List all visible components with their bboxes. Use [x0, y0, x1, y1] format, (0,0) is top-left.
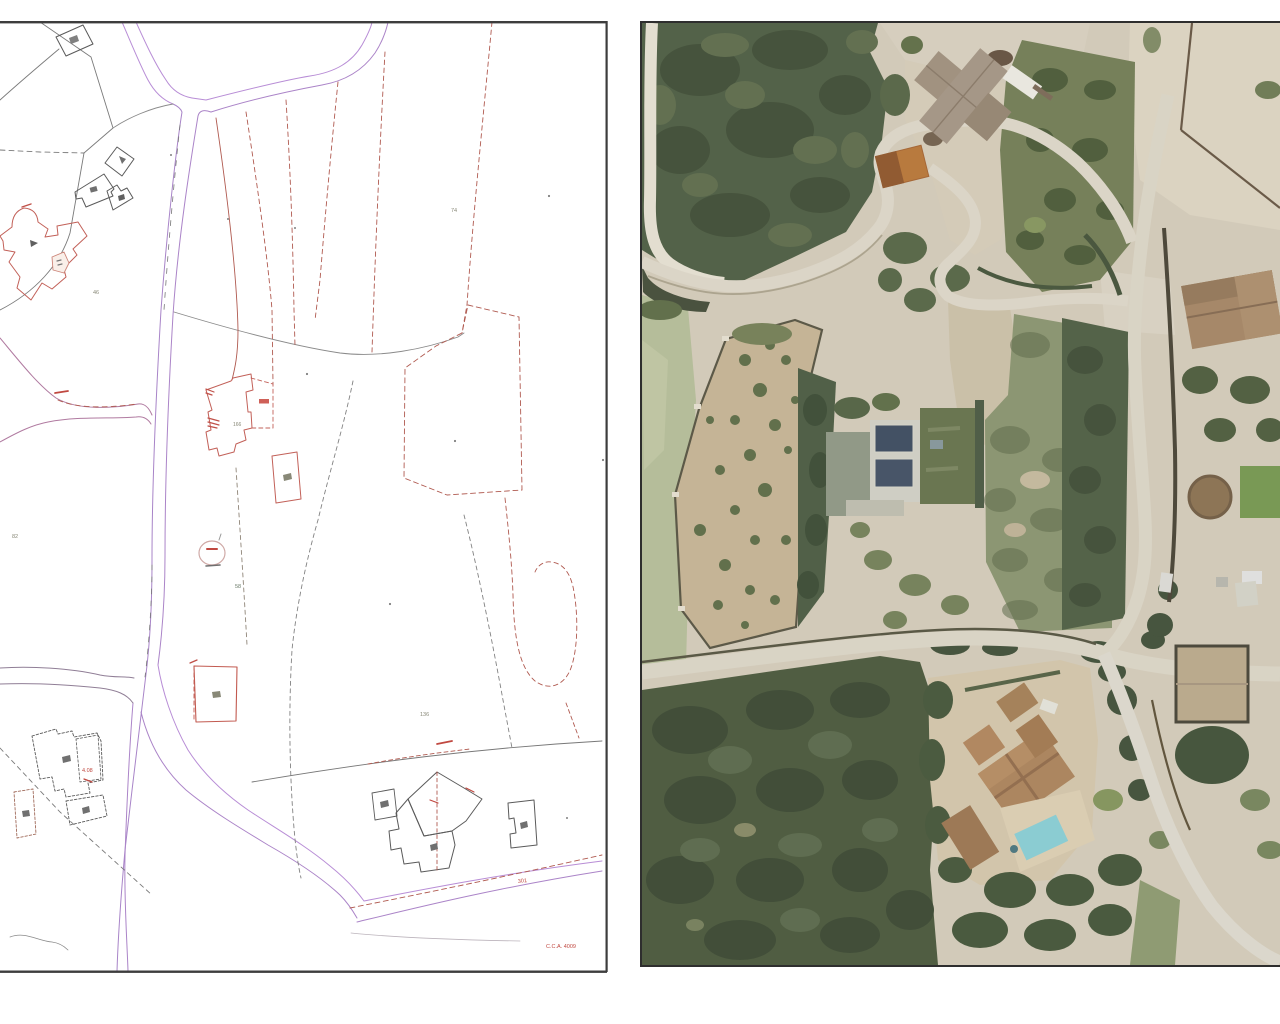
svg-text:74: 74	[451, 208, 457, 214]
svg-text:301: 301	[518, 878, 528, 885]
svg-text:136: 136	[420, 712, 429, 718]
svg-text:166: 166	[233, 422, 242, 428]
svg-text:C.C.A. 4009: C.C.A. 4009	[546, 944, 576, 950]
svg-text:82: 82	[12, 534, 18, 540]
svg-text:46: 46	[93, 290, 99, 296]
svg-text:58: 58	[235, 584, 241, 590]
svg-text:4.08: 4.08	[82, 768, 93, 774]
